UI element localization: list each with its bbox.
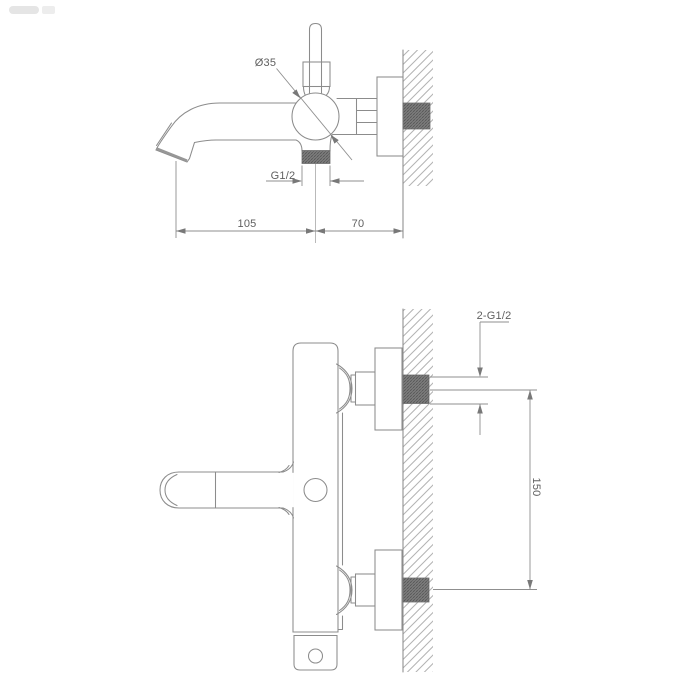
label-dim-70: 70	[352, 218, 365, 230]
arrowheads	[477, 368, 533, 590]
connection-centerlines	[430, 390, 537, 590]
label-connection-thread: 2-G1/2	[477, 310, 512, 322]
wall-section-top-view	[403, 50, 433, 238]
wall-thread-connector	[403, 103, 430, 129]
arm-wall-thread	[403, 375, 429, 404]
lever-handle	[160, 462, 294, 518]
technical-drawing-page: Ø35 G1/2 105 70	[0, 0, 700, 700]
union-nut-bands	[357, 99, 378, 135]
label-dim-150: 150	[530, 478, 542, 497]
top-view-side	[156, 24, 433, 239]
wall-flange	[377, 77, 403, 156]
watermark-shape	[9, 6, 39, 14]
arm-flange	[375, 550, 402, 630]
bottom-view-labels: 2-G1/2 150	[477, 310, 542, 496]
shower-outlet-block	[294, 636, 337, 671]
faucet-technical-drawing: Ø35 G1/2 105 70	[0, 0, 700, 700]
lever-body-mask	[284, 473, 294, 507]
lever-grip	[160, 472, 283, 508]
g12-extension-lines	[302, 166, 330, 187]
label-outlet-thread: G1/2	[271, 170, 296, 182]
thread-extension-lines	[430, 377, 488, 404]
body-rear-edge	[338, 413, 343, 630]
top-view-labels: Ø35 G1/2 105 70	[238, 57, 365, 230]
handle-collar	[303, 62, 330, 87]
wall-hatch	[403, 309, 433, 672]
valve-body-circle	[292, 93, 339, 140]
top-view-dimensions	[176, 69, 403, 244]
label-diameter-35: Ø35	[255, 57, 276, 69]
wall-section-bottom-view	[403, 309, 433, 672]
watermark-shape	[42, 6, 55, 14]
label-dim-105: 105	[238, 218, 257, 230]
arm-wall-thread	[403, 578, 429, 602]
logo-watermark	[9, 6, 55, 14]
arm-nut	[356, 372, 376, 405]
thread-leader-line	[480, 322, 509, 435]
bottom-view-front	[160, 309, 433, 672]
arm-nut	[356, 574, 376, 606]
spout-outline	[156, 103, 296, 162]
arm-flange	[375, 348, 402, 430]
control-button-circle	[304, 479, 327, 502]
outlet-thread-g12	[302, 151, 330, 164]
handle-rod	[310, 24, 322, 94]
bottom-view-dimensions	[430, 322, 537, 590]
